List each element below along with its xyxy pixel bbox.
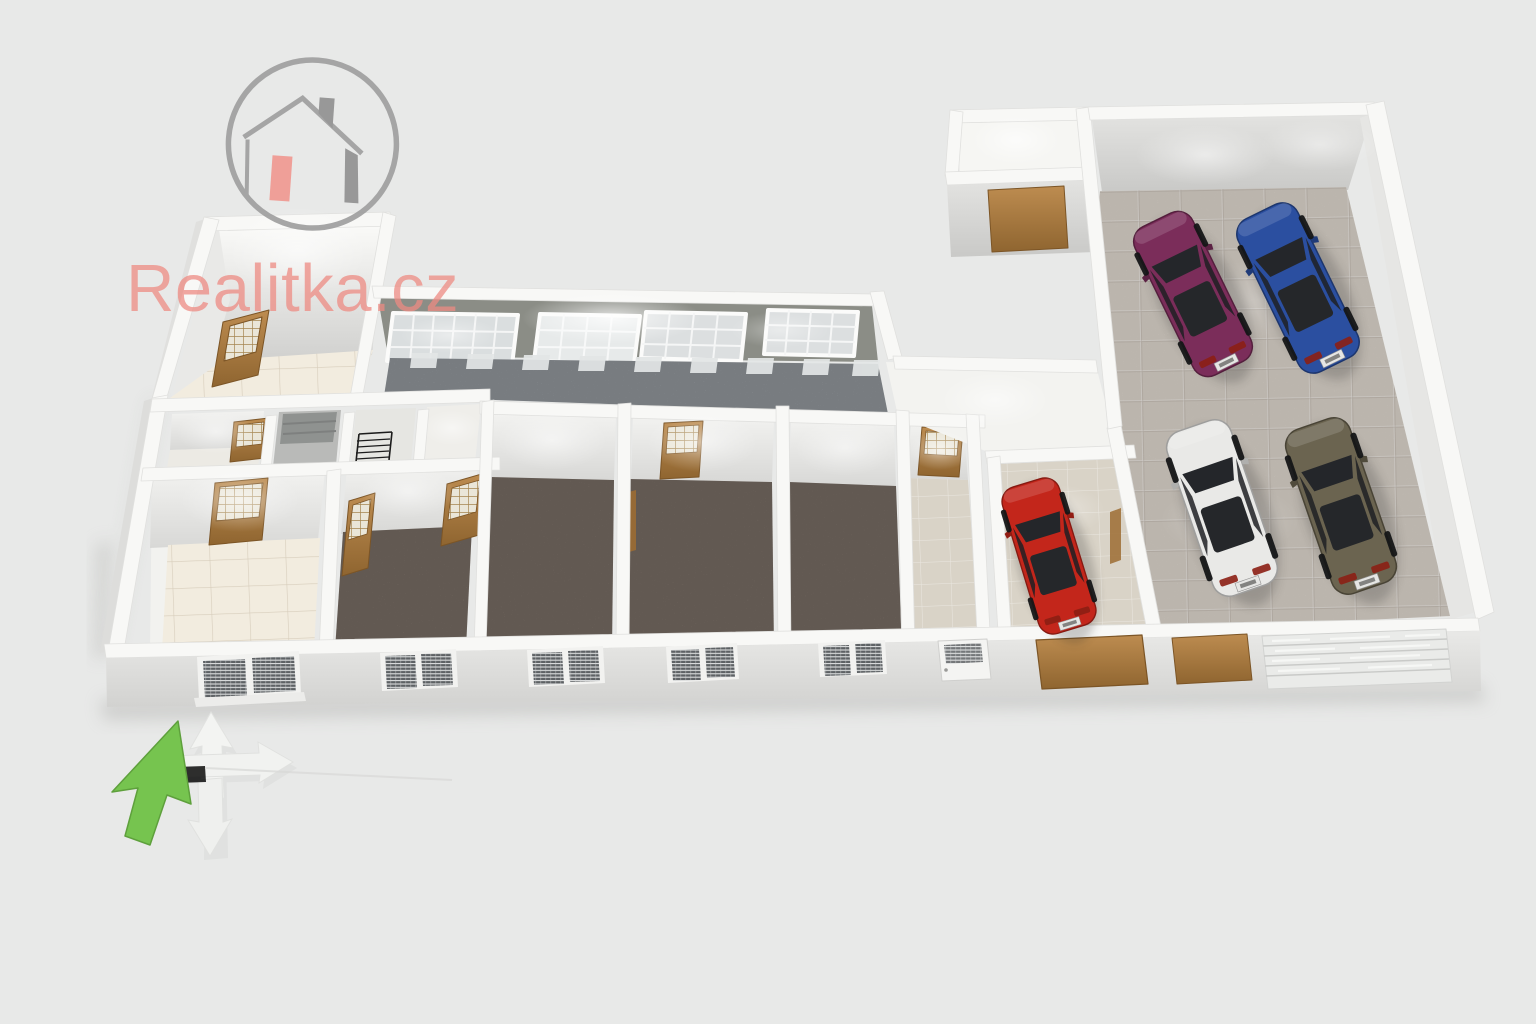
front-window — [818, 640, 887, 677]
wooden-garage-door — [1036, 635, 1148, 689]
room-4-floor — [907, 478, 980, 652]
room-2-floor-texture — [625, 479, 774, 651]
floorplan-scene: Realitka.cz — [0, 0, 1536, 1024]
room-a-floor — [162, 538, 320, 651]
front-window — [666, 643, 739, 683]
wooden-garage-door — [988, 186, 1068, 252]
wooden-door — [1172, 634, 1252, 684]
stair-room-floor — [351, 408, 416, 465]
front-window — [380, 649, 458, 691]
wall — [776, 406, 791, 651]
room-3-floor-texture — [787, 482, 902, 651]
sectional-garage-door — [1262, 629, 1452, 689]
front-window — [527, 646, 605, 687]
closet-interior — [280, 412, 337, 444]
entrance-door — [938, 639, 991, 681]
floorplan-3d-render: Realitka.cz — [0, 0, 1536, 1024]
room-1-floor-texture — [486, 477, 614, 650]
wall — [616, 403, 631, 651]
side-door-edge — [1110, 508, 1121, 564]
brand-text: Realitka.cz — [126, 251, 459, 326]
front-window — [194, 651, 306, 707]
